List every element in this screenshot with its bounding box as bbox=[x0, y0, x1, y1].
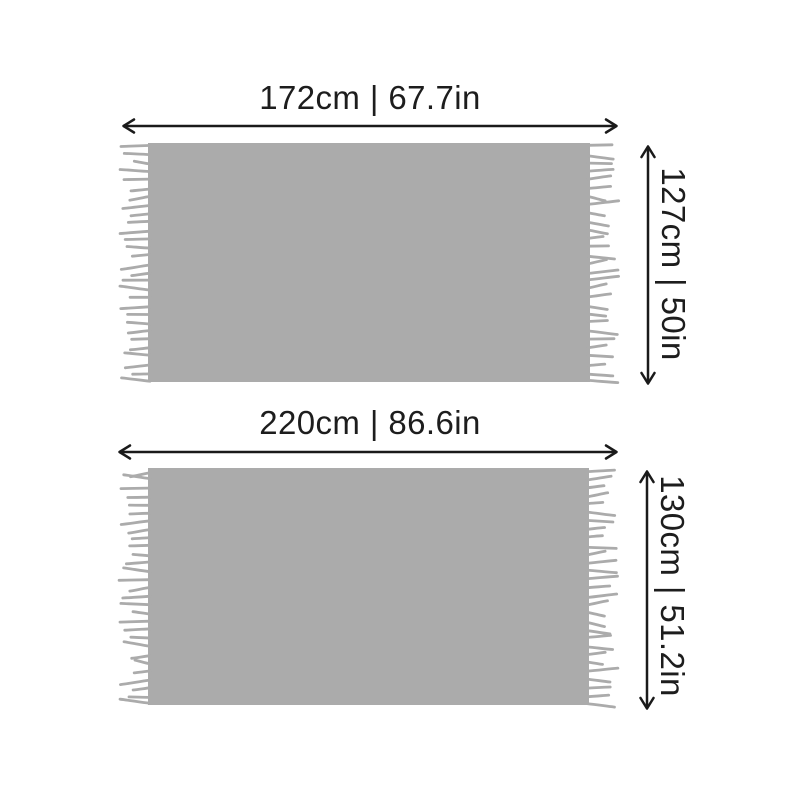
width-dimension-label-large: 220cm | 86.6in bbox=[70, 403, 670, 443]
size-diagram: 172cm | 67.7in 127cm | 50in 220cm | 86.6… bbox=[0, 0, 800, 800]
horizontal-dimension-arrow-large bbox=[120, 446, 617, 459]
horizontal-dimension-arrow-small bbox=[124, 120, 617, 133]
left-fringe-small bbox=[120, 145, 150, 381]
width-dimension-label-small: 172cm | 67.7in bbox=[70, 78, 670, 118]
blanket-graphic-large bbox=[119, 468, 618, 707]
left-fringe-large bbox=[119, 473, 150, 704]
height-dimension-label-large: 130cm | 51.2in bbox=[652, 386, 692, 786]
blanket-graphic-small bbox=[120, 143, 619, 383]
right-fringe-small bbox=[588, 145, 619, 383]
right-fringe-large bbox=[587, 470, 618, 707]
